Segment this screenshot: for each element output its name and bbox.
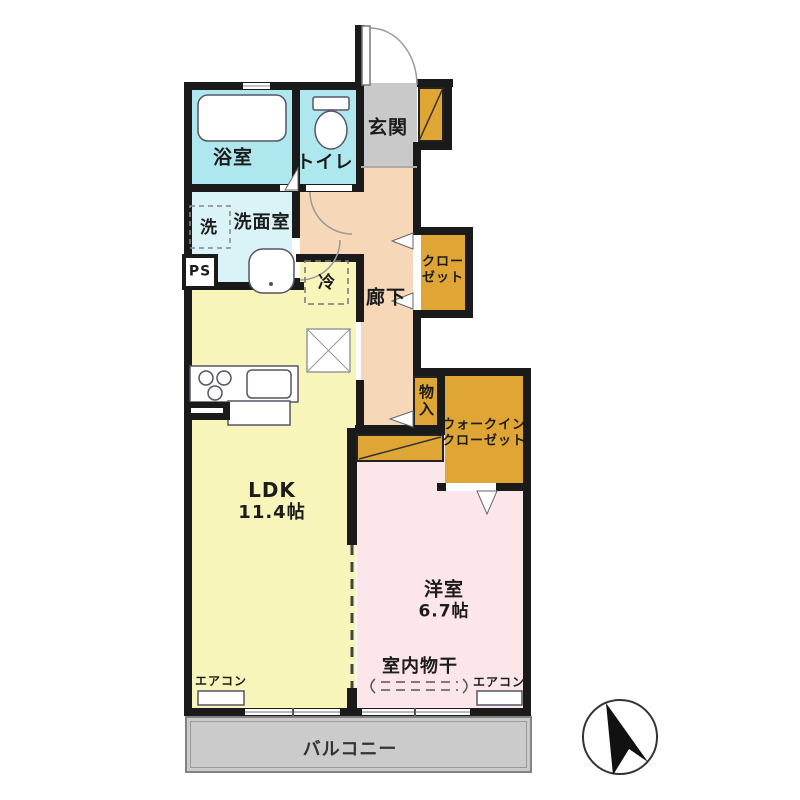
stove-burner-icon [208,386,222,400]
floor-hatch-icon [307,329,350,372]
washroom-label: 洗面室 [234,212,291,234]
closet-label: クロー ゼット [422,254,464,285]
aircon-left-label: エアコン [195,674,247,688]
bedroom-label: 洋室 6.7帖 [418,578,469,621]
entrance-label: 玄関 [368,117,408,140]
aircon-unit-left [198,691,244,705]
washer-label: 洗 [200,218,218,238]
bath-label: 浴室 [213,147,253,170]
fridge-label: 冷 [318,273,336,293]
corridor-label: 廊下 [366,287,406,310]
shoe-cabinet-diagonal [419,88,443,141]
indoor-drying-label: 室内物干 [382,656,458,678]
toilet-door-arc [310,192,352,234]
entrance-door-arc [370,28,417,85]
toilet-icon [313,97,349,149]
kitchen-counter-icon [186,366,298,425]
storage-label: 物入 [417,384,435,418]
aircon-right-label: エアコン [473,675,525,689]
indoor-drying-marker [371,679,467,693]
washbasin-icon [249,249,294,293]
walk-in-closet-label: ウォークイン クローゼット [442,417,526,448]
storage-door-marker [390,411,413,427]
compass-north-icon [583,700,657,775]
stove-burner-icon [217,371,231,385]
toilet-label: トイレ [297,152,354,174]
entrance-door [362,26,417,85]
ldk-label: LDK 11.4帖 [238,478,305,524]
aircon-units [198,691,522,705]
entrance-door-leaf [362,26,370,85]
stove-burner-icon [199,371,213,385]
closet-door-marker-top [392,233,413,249]
bathtub-icon [198,95,286,141]
kitchen-sink-icon [247,370,291,398]
aircon-unit-right [477,691,522,705]
balcony-label: バルコニー [303,739,398,761]
walk-in-closet-door-marker [477,491,497,514]
bedroom-shelf-strip [357,435,443,461]
floor-plan: 浴室 トイレ 玄関 洗 洗面室 PS 冷 廊下 クロー ゼット 物入 ウォークイ… [0,0,800,800]
pipe-space-label: PS [189,264,211,281]
